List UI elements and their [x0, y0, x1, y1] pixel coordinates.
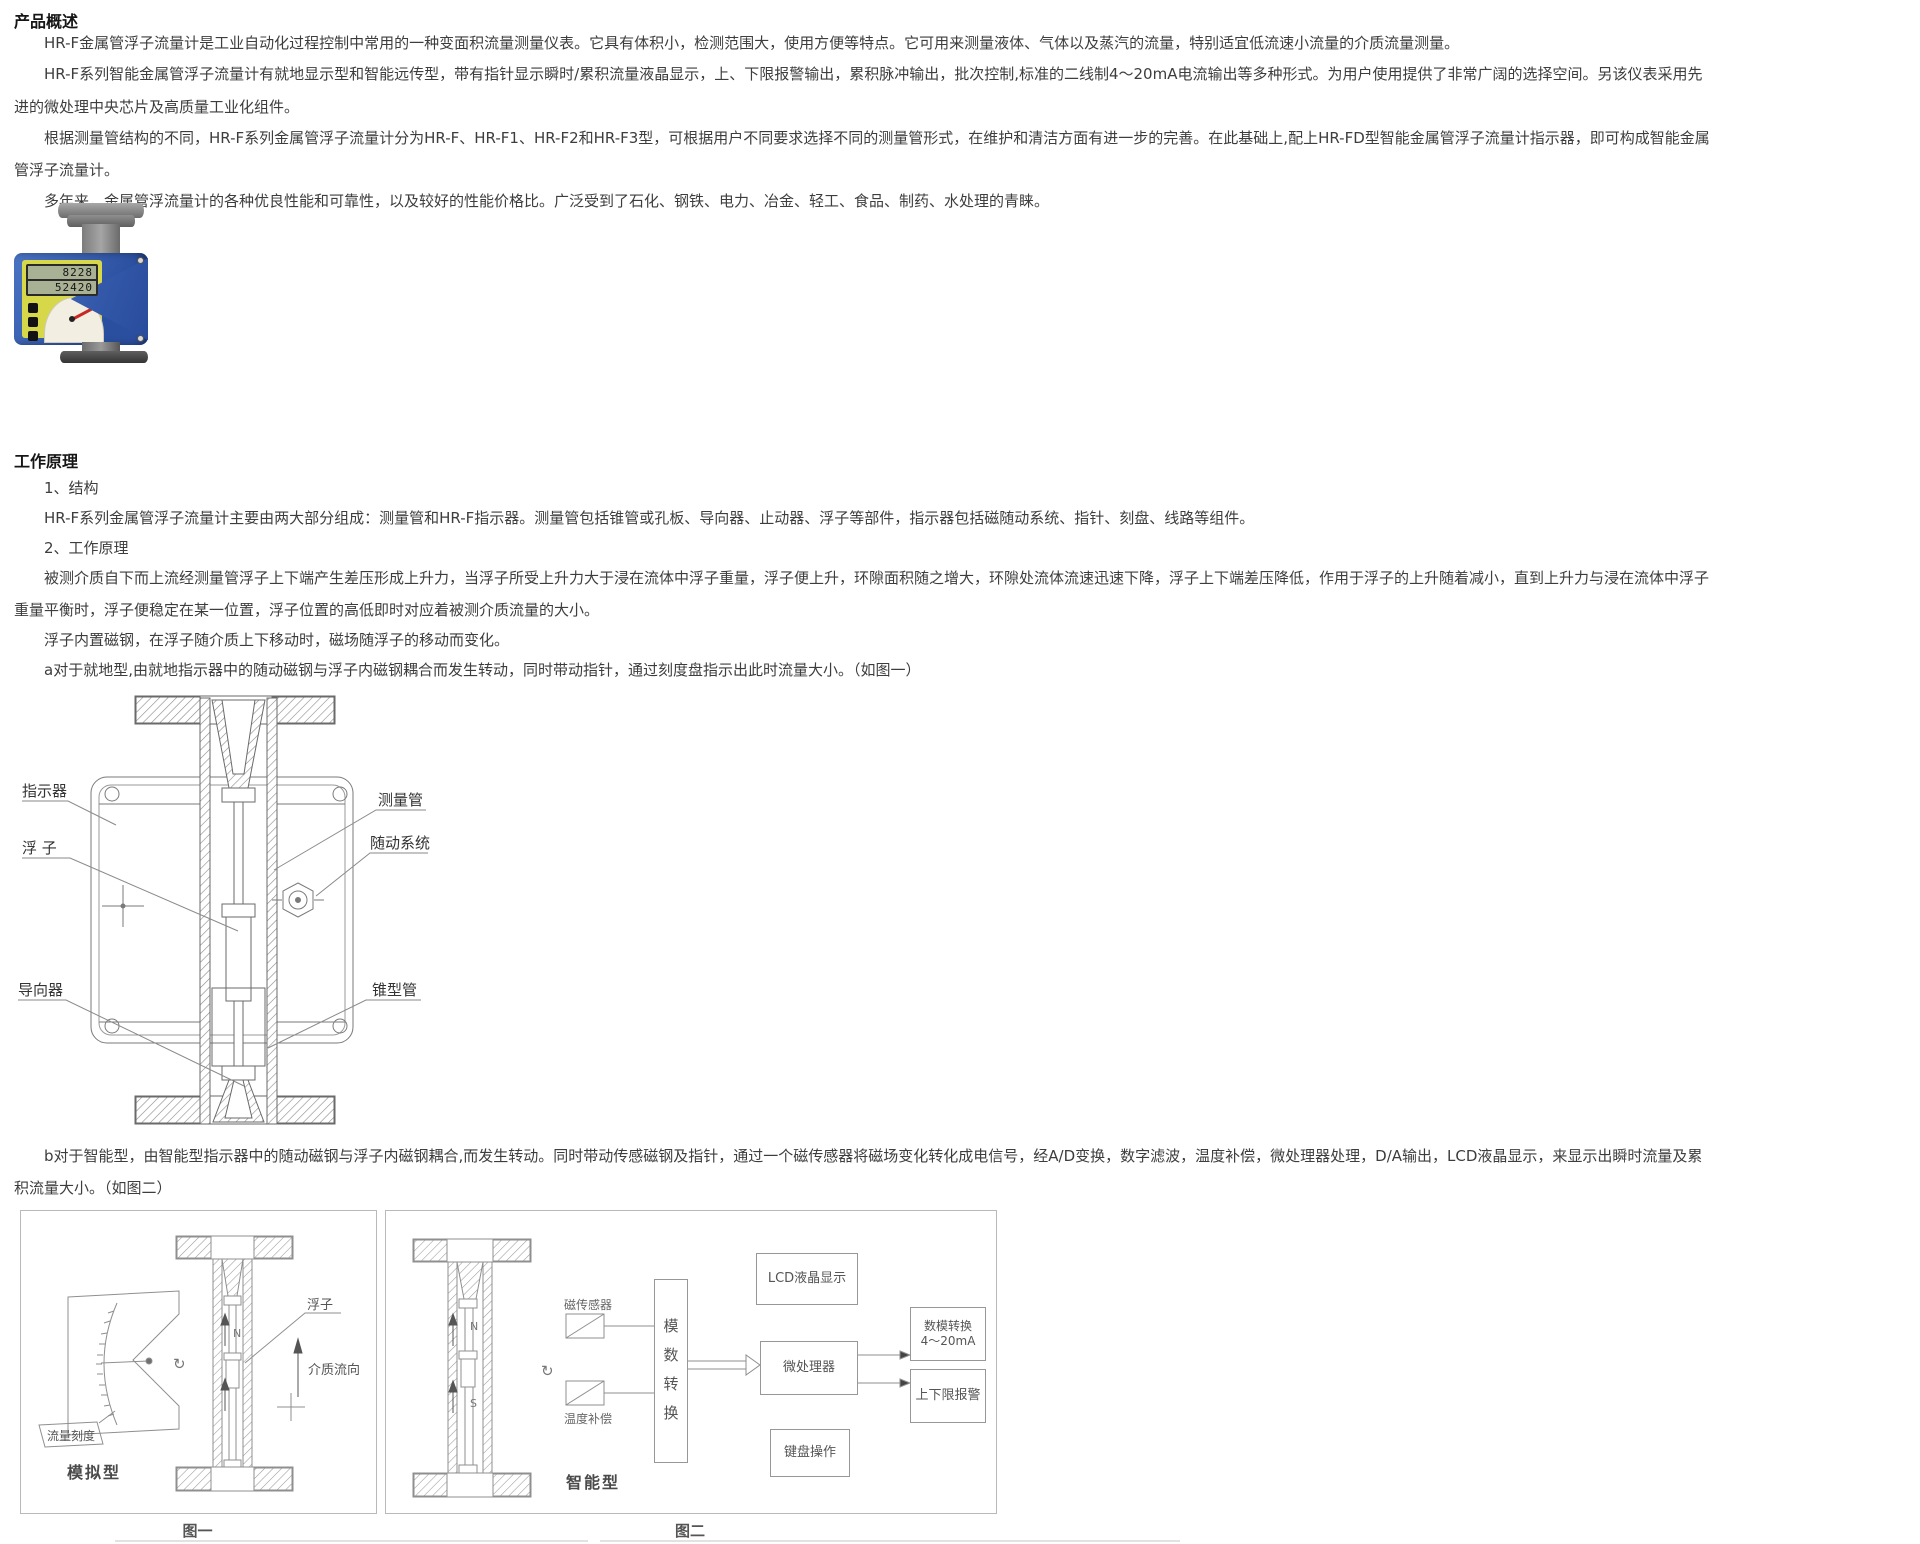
overview-paragraph-2-line1: HR-F系列智能金属管浮子流量计有就地显示型和智能远传型，带有指针显示瞬时/累积… — [14, 64, 1702, 84]
tube-assembly — [176, 1236, 293, 1491]
figure1-flow-label: 介质流向 — [308, 1362, 360, 1378]
figure2-s-mark: S — [470, 1397, 477, 1410]
output-arrows — [858, 1351, 910, 1387]
figure1-scale-label: 流量刻度 — [47, 1428, 95, 1443]
section-title-principle: 工作原理 — [14, 448, 78, 472]
overview-paragraph-1: HR-F金属管浮子流量计是工业自动化过程控制中常用的一种变面积流量测量仪表。它具… — [14, 33, 1459, 53]
figure1-type-label: 模拟型 — [67, 1459, 121, 1483]
float-leader — [245, 1313, 341, 1363]
figure1-float-label: 浮子 — [307, 1298, 333, 1313]
label-follower: 随动系统 — [370, 834, 430, 852]
crosshair-mark — [102, 885, 144, 927]
top-pipe-neck — [82, 224, 120, 256]
label-tube: 测量管 — [378, 791, 423, 809]
divider — [600, 1540, 1180, 1542]
figure2-keypad-box: 键盘操作 — [770, 1429, 850, 1477]
overview-paragraph-3-line1: 根据测量管结构的不同，HR-F系列金属管浮子流量计分为HR-F、HR-F1、HR… — [14, 128, 1710, 148]
follower-nut — [272, 883, 324, 917]
device-button-1 — [28, 303, 38, 313]
bus-arrow — [688, 1355, 760, 1375]
screw-icon — [137, 335, 144, 342]
device-button-3 — [28, 331, 38, 341]
figure2-dac-line1: 数模转换 — [924, 1319, 972, 1333]
figure1-caption: 图一 — [20, 1520, 375, 1541]
figure2-dac-line2: 4～20mA — [921, 1334, 976, 1348]
principle-item-1: 1、结构 — [14, 478, 99, 498]
lcd-display: 8228 52420 — [26, 264, 98, 296]
label-cone: 锥型管 — [372, 981, 417, 999]
overview-paragraph-2-line2: 进的微处理中央芯片及高质量工业化组件。 — [14, 97, 299, 117]
tube-assembly — [413, 1239, 531, 1497]
label-indicator: 指示器 — [22, 782, 67, 800]
tube-internals — [212, 700, 265, 1122]
figure2-dac-box: 数模转换 4～20mA — [910, 1307, 986, 1361]
figure2-lcd-box: LCD液晶显示 — [756, 1253, 858, 1305]
bottom-flange — [60, 351, 148, 363]
principle-paragraph-3: a对于就地型,由就地指示器中的随动磁钢与浮子内磁钢耦合而发生转动，同时带动指针，… — [14, 660, 920, 680]
lcd-row-2: 52420 — [28, 281, 96, 294]
divider — [115, 1540, 588, 1542]
dial-hub — [69, 316, 75, 322]
figure2-n-mark: N — [470, 1320, 478, 1333]
screw-icon — [137, 257, 144, 264]
figure2-alarm-box: 上下限报警 — [910, 1369, 986, 1423]
figure2-smart-type: N S ↻ 磁传感器 温度补偿 模数转换 LCD液晶显示 — [385, 1210, 997, 1514]
figure2-type-label: 智能型 — [566, 1469, 620, 1493]
product-photo-flowmeter: 8228 52420 — [14, 203, 154, 363]
device-button-2 — [28, 317, 38, 327]
cross-section-diagram: 指示器 浮 子 导向器 测量管 随动系统 锥型管 — [16, 688, 436, 1140]
flow-direction-arrow — [277, 1339, 305, 1421]
figure2-temp-label: 温度补偿 — [564, 1411, 612, 1426]
principle-paragraph-4-line1: b对于智能型，由智能型指示器中的随动磁钢与浮子内磁钢耦合,而发生转动。同时带动传… — [14, 1146, 1702, 1166]
rotation-icon: ↻ — [541, 1362, 554, 1380]
dial-panel — [68, 1291, 179, 1435]
principle-item-1-text: HR-F系列金属管浮子流量计主要由两大部分组成：测量管和HR-F指示器。测量管包… — [14, 508, 1254, 528]
label-float: 浮 子 — [22, 839, 57, 857]
overview-paragraph-4: 多年来，金属管浮流量计的各种优良性能和可靠性，以及较好的性能价格比。广泛受到了石… — [14, 191, 1049, 211]
figure2-drawing: N S ↻ 磁传感器 温度补偿 — [386, 1211, 994, 1511]
document-page: 产品概述 HR-F金属管浮子流量计是工业自动化过程控制中常用的一种变面积流量测量… — [0, 0, 1920, 1544]
overview-paragraph-3-line2: 管浮子流量计。 — [14, 160, 119, 180]
figure2-adc-box: 模数转换 — [654, 1279, 688, 1463]
lcd-row-1: 8228 — [28, 266, 96, 279]
figure2-sensor-label: 磁传感器 — [564, 1297, 612, 1312]
principle-paragraph-2: 浮子内置磁钢，在浮子随介质上下移动时，磁场随浮子的移动而变化。 — [14, 630, 509, 650]
principle-item-2: 2、工作原理 — [14, 538, 129, 558]
section-title-overview: 产品概述 — [14, 8, 78, 32]
principle-paragraph-1-line2: 重量平衡时，浮子便稳定在某一位置，浮子位置的高低即时对应着被测介质流量的大小。 — [14, 600, 599, 620]
sensor-symbols — [566, 1314, 654, 1405]
figure2-mcu-box: 微处理器 — [760, 1341, 858, 1395]
figure1-n-mark: N — [233, 1327, 241, 1340]
figure2-caption: 图二 — [385, 1520, 995, 1541]
rotation-icon: ↻ — [173, 1355, 186, 1373]
figure1-analog-type: 浮子 介质流向 流量刻度 N ↻ 模拟型 — [20, 1210, 377, 1514]
principle-paragraph-1-line1: 被测介质自下而上流经测量管浮子上下端产生差压形成上升力，当浮子所受上升力大于浸在… — [14, 568, 1709, 588]
principle-paragraph-4-line2: 积流量大小。（如图二） — [14, 1178, 172, 1198]
label-guide: 导向器 — [18, 981, 63, 999]
